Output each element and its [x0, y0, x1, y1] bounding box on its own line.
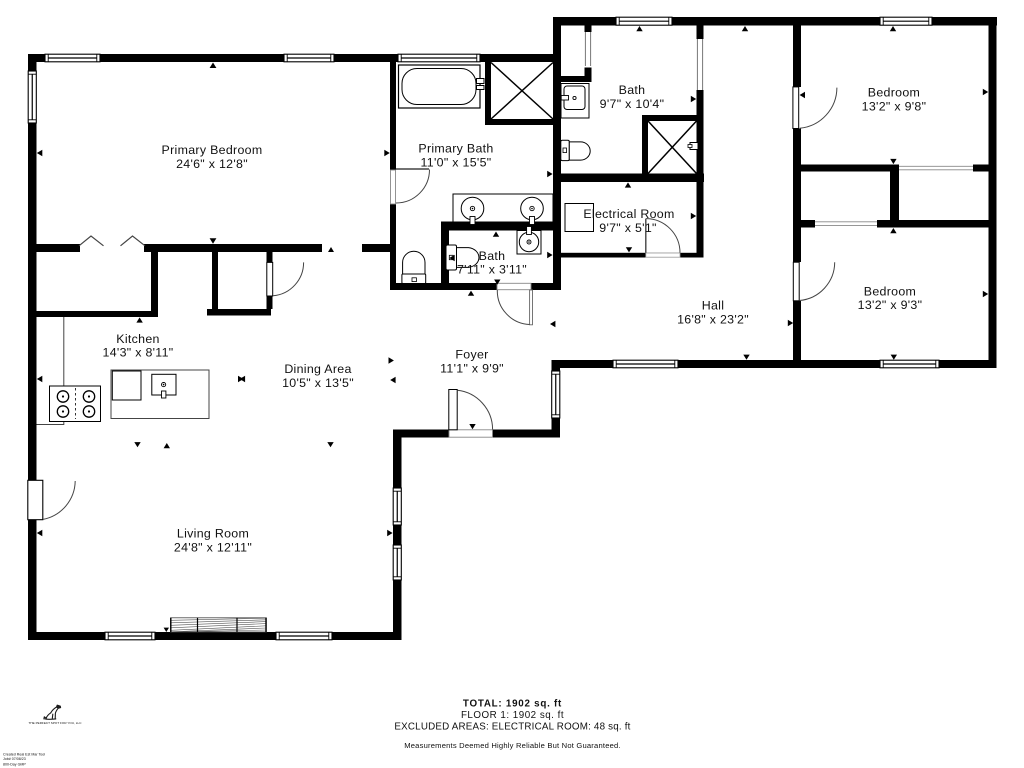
svg-text:800-Day GMP: 800-Day GMP: [3, 763, 26, 767]
svg-text:24'6" x 12'8": 24'6" x 12'8": [176, 157, 248, 171]
svg-text:Hall: Hall: [702, 299, 725, 313]
svg-text:FLOOR 1: 1902 sq. ft: FLOOR 1: 1902 sq. ft: [461, 710, 564, 721]
svg-text:Living Room: Living Room: [177, 527, 249, 541]
svg-text:Bath: Bath: [619, 83, 646, 97]
svg-text:Bedroom: Bedroom: [868, 86, 920, 100]
svg-text:Kitchen: Kitchen: [116, 332, 159, 346]
svg-text:13'2" x 9'3": 13'2" x 9'3": [858, 298, 923, 312]
svg-text:THE PERFECT SPOT FOR YOU, LLC: THE PERFECT SPOT FOR YOU, LLC: [29, 721, 83, 725]
svg-text:24'8" x 12'11": 24'8" x 12'11": [174, 541, 252, 555]
svg-text:Bath: Bath: [479, 249, 506, 263]
svg-text:14'3" x 8'11": 14'3" x 8'11": [103, 346, 174, 360]
svg-text:Primary Bedroom: Primary Bedroom: [162, 143, 263, 157]
svg-text:Foyer: Foyer: [455, 348, 488, 362]
svg-text:Electrical Room: Electrical Room: [583, 207, 674, 221]
svg-text:9'7" x 10'4": 9'7" x 10'4": [600, 97, 665, 111]
svg-text:10'5" x 13'5": 10'5" x 13'5": [282, 376, 354, 390]
svg-text:13'2" x 9'8": 13'2" x 9'8": [862, 100, 927, 114]
svg-text:EXCLUDED AREAS: ELECTRICAL ROO: EXCLUDED AREAS: ELECTRICAL ROOM: 48 sq. …: [394, 722, 630, 733]
svg-text:Job# 07/08/23: Job# 07/08/23: [3, 757, 26, 761]
svg-text:TOTAL: 1902 sq. ft: TOTAL: 1902 sq. ft: [463, 699, 562, 710]
svg-text:Dining Area: Dining Area: [284, 362, 351, 376]
svg-text:11'0" x 15'5": 11'0" x 15'5": [421, 156, 492, 170]
svg-text:Bedroom: Bedroom: [864, 285, 916, 299]
svg-text:Measurements Deemed Highly Rel: Measurements Deemed Highly Reliable But …: [404, 741, 621, 750]
svg-text:Primary Bath: Primary Bath: [418, 142, 493, 156]
svg-text:16'8" x 23'2": 16'8" x 23'2": [677, 313, 749, 327]
svg-text:9'7" x 5'1": 9'7" x 5'1": [599, 221, 656, 235]
svg-text:7'11" x 3'11": 7'11" x 3'11": [457, 263, 527, 277]
svg-text:11'1" x 9'9": 11'1" x 9'9": [440, 362, 504, 376]
svg-text:Created Real Est Mar Tool: Created Real Est Mar Tool: [3, 753, 45, 757]
